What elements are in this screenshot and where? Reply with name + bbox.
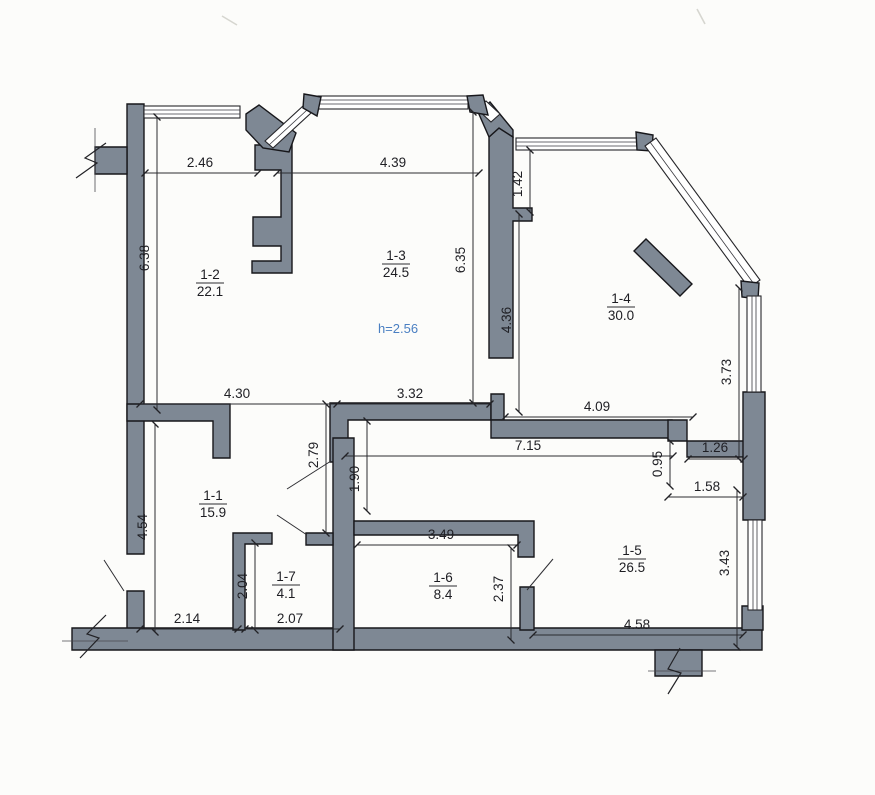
dim-room16-width: 3.49 [428, 527, 454, 542]
room-label-1-3: 1-3 [386, 248, 406, 263]
dim-opening-left: 2.79 [306, 442, 321, 468]
floor-plan-page: 2.46 4.39 1.42 6.38 6.35 4.36 3.73 4.30 … [0, 0, 875, 795]
dim-room15-bottom-width: 4.58 [624, 617, 650, 632]
room-area-1-7: 4.1 [277, 586, 296, 601]
ceiling-height-note: h=2.56 [378, 321, 418, 336]
window-top-left [144, 106, 240, 118]
bay-corner-post-right [467, 95, 488, 115]
scan-artifact [222, 16, 237, 25]
wall-bottom [72, 628, 762, 650]
floor-plan-drawing: 2.46 4.39 1.42 6.38 6.35 4.36 3.73 4.30 … [0, 0, 875, 795]
room-label-1-4: 1-4 [611, 291, 631, 306]
dim-room11-height: 4.54 [135, 513, 150, 540]
dim-step-width: 1.26 [702, 440, 728, 455]
door-swing-room16 [527, 559, 553, 590]
wall-left-arm [95, 147, 127, 174]
window-room14-top [516, 138, 638, 150]
dim-room17-height: 2.04 [235, 572, 250, 599]
dim-door-room15-width: 1.58 [694, 479, 720, 494]
dim-wall-34-height: 4.36 [499, 307, 514, 333]
room-area-1-6: 8.4 [434, 587, 453, 602]
room-label-1-6: 1-6 [433, 570, 453, 585]
wall-mid-band-right [491, 420, 672, 438]
dim-room14-right-height: 3.73 [719, 359, 734, 385]
window-right-upper [747, 296, 761, 392]
dim-mid-room13-width: 3.32 [397, 386, 423, 401]
dim-room15-right-height: 3.43 [717, 550, 732, 576]
room-area-1-5: 26.5 [619, 560, 645, 575]
dim-opening-right: 1.90 [347, 466, 362, 492]
wall-step-block [668, 420, 687, 441]
room-area-1-4: 30.0 [608, 308, 634, 323]
dim-top-room12-width: 2.46 [187, 155, 213, 170]
room-label-1-5: 1-5 [622, 543, 642, 558]
dim-mid-room11-width: 4.30 [224, 386, 250, 401]
door-swing-room11-left [104, 560, 124, 591]
dim-step-height: 0.95 [650, 451, 665, 477]
dim-mid-room14-width: 4.09 [584, 399, 610, 414]
dim-corridor-length: 7.15 [515, 438, 541, 453]
wall-left-main [127, 104, 144, 554]
window-bay-top [318, 96, 468, 109]
door-swing-room17 [277, 515, 307, 535]
wall-left-lower-stub [127, 591, 144, 632]
scan-artifact [697, 9, 705, 24]
dim-room12-height: 6.38 [137, 245, 152, 271]
room-area-1-3: 24.5 [383, 265, 409, 280]
wall-mid-pilaster [491, 394, 504, 420]
wall-divider-room12-room13 [252, 133, 292, 273]
dim-room11-bottom-width: 2.14 [174, 611, 201, 626]
room-area-1-1: 15.9 [200, 505, 226, 520]
room-area-1-2: 22.1 [197, 284, 223, 299]
dimensions: 2.46 4.39 1.42 6.38 6.35 4.36 3.73 4.30 … [135, 112, 744, 647]
dim-window-room14-left: 1.42 [510, 171, 525, 197]
room-label-1-2: 1-2 [200, 267, 220, 282]
wall-right-pillar [743, 392, 765, 520]
room-label-1-7: 1-7 [276, 569, 296, 584]
dim-room16-height: 2.37 [491, 576, 506, 602]
dim-top-room13-width: 4.39 [380, 155, 406, 170]
window-right-lower [748, 520, 762, 610]
wall-room17-door-stub [306, 533, 333, 545]
dim-room13-height: 6.35 [453, 247, 468, 273]
diagonal-partition-room14 [634, 239, 692, 296]
room-label-1-1: 1-1 [203, 488, 223, 503]
dim-room17-bottom-width: 2.07 [277, 611, 303, 626]
wall-room16-right-lower [520, 587, 534, 630]
